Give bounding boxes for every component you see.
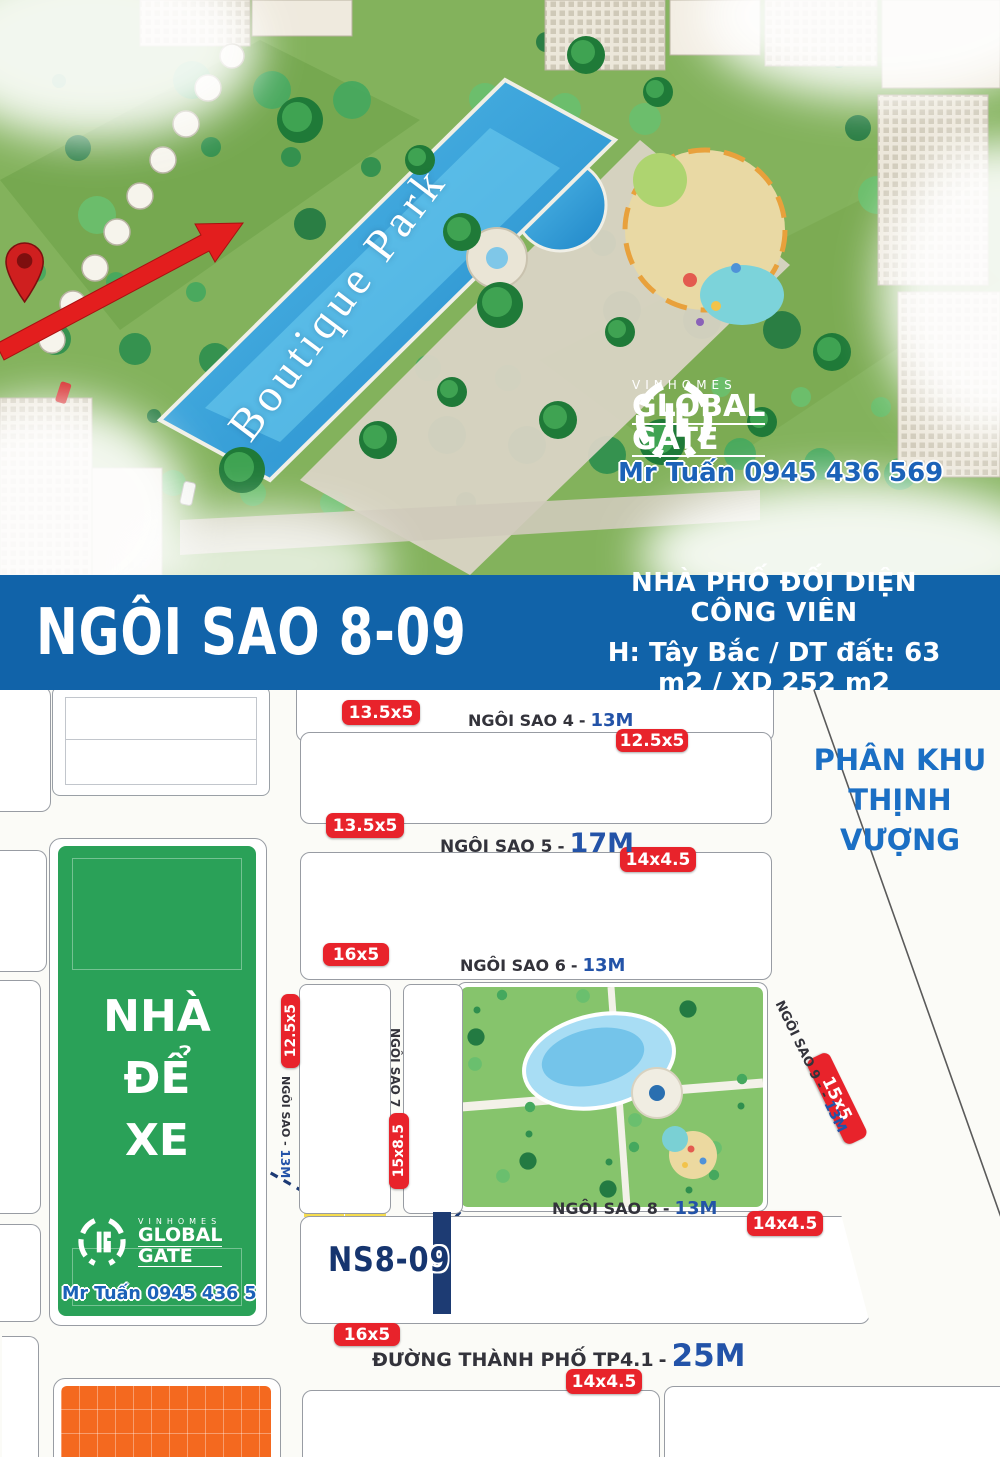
global-gate-logo: VINHOMES GLOBAL GATE [632,378,892,457]
dimension-badge-15x8.5: 15x8.5 [389,1113,409,1189]
real-estate-flyer: Boutique Park VINHOMES GLOBAL GATE Mr Tu… [0,0,1000,1457]
dimension-badge-12.5x5: 12.5x5 [616,729,688,752]
parking-block-outline: NHÀ ĐỂ XE VINHOMES GLOBAL [49,838,267,1326]
fountain [486,247,508,269]
agent-contact-small: Mr Tuấn 0945 436 569 [62,1284,254,1304]
central-park-block [456,982,768,1212]
map-block [0,690,51,812]
central-park-details [461,987,763,1207]
street-label-ng-i-sao-7: NGÔI SAO 7 [388,1028,402,1107]
map-block [664,1386,1000,1457]
parking-label: NHÀ ĐỂ XE [58,986,256,1172]
map-block [299,984,391,1214]
info-banner: NGÔI SAO 8-09 NHÀ PHỐ ĐỐI DIỆN CÔNG VIÊN… [0,575,1000,690]
dimension-badge-12.5x5: 12.5x5 [281,994,300,1068]
lot-title: NGÔI SAO 8-09 [36,596,467,670]
map-block [2,1336,39,1457]
orange-building-block [61,1386,271,1457]
global-gate-logo-small: VINHOMES GLOBAL GATE [76,1216,256,1268]
dimension-badge-13.5x5: 13.5x5 [342,700,420,725]
street-label-ng-i-sao-5: NGÔI SAO 5- 17M [440,828,634,859]
banner-subtitle: NHÀ PHỐ ĐỐI DIỆN CÔNG VIÊN [588,568,960,628]
logo-emblem-icon [76,1216,128,1268]
street-label-ng-i-sao-6: NGÔI SAO 6- 13M [460,955,625,976]
street-label-ng-i-sao-4: NGÔI SAO 4- 13M [468,710,633,731]
map-block [0,1224,41,1322]
banner-specs: H: Tây Bắc / DT đất: 63 m2 / XD 252 m2 [588,638,960,698]
building-footprint [52,690,270,796]
street-label-ng-i-sao-8: NGÔI SAO 8- 13M [552,1198,717,1219]
logo-emblem-icon [632,378,716,462]
orange-block-outline [53,1378,281,1457]
agent-contact: Mr Tuấn 0945 436 569 [618,458,908,488]
zone-name: PHÂN KHU THỊNH VƯỢNG [800,740,1000,860]
dimension-badge-16x5: 16x5 [323,943,389,966]
map-block [300,732,772,824]
street-label--ng-th-nh-ph-tp4-1: ĐƯỜNG THÀNH PHỐ TP4.1- 25M [372,1338,746,1374]
parking-garage: NHÀ ĐỂ XE VINHOMES GLOBAL [58,846,256,1316]
hero-render: Boutique Park VINHOMES GLOBAL GATE Mr Tu… [0,0,1000,575]
map-block [403,984,463,1214]
highlight-callout: NS8-09 [328,1240,450,1280]
dimension-badge-13.5x5: 13.5x5 [326,813,404,838]
map-block [302,1390,660,1457]
dimension-badge-14x4.5: 14x4.5 [747,1211,823,1236]
street-label-ng-i-sao-: NGÔI SAO - 13M [278,1076,292,1178]
map-block [0,850,47,972]
map-block [0,980,41,1214]
site-plan-map: NHÀ ĐỂ XE VINHOMES GLOBAL [0,690,1000,1457]
